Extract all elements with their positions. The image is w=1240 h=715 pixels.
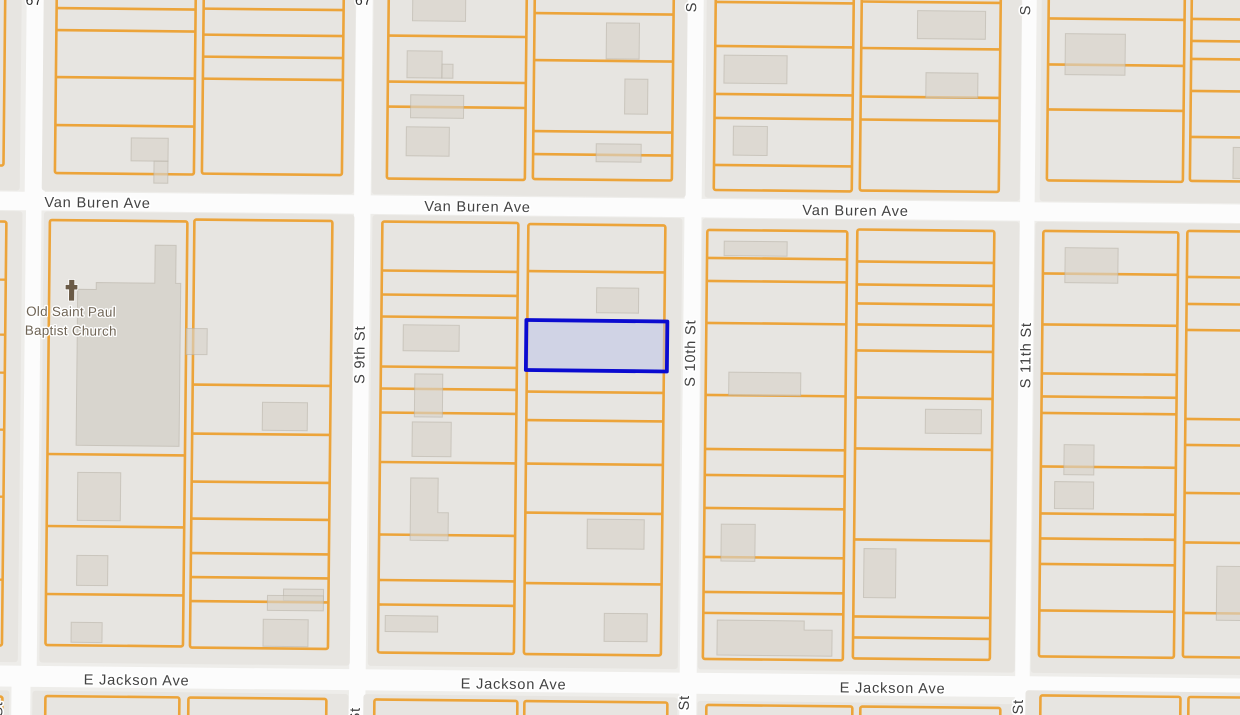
svg-text:S 11th St: S 11th St xyxy=(1010,699,1027,715)
svg-text:S 8th St: S 8th St xyxy=(0,701,6,715)
svg-text:S 11th St: S 11th St xyxy=(1018,0,1035,15)
svg-text:Van Buren Ave: Van Buren Ave xyxy=(802,203,909,220)
svg-text:S 10th St: S 10th St xyxy=(683,320,700,387)
svg-text:67: 67 xyxy=(355,0,372,8)
svg-text:Van Buren Ave: Van Buren Ave xyxy=(44,195,151,212)
svg-text:E Jackson Ave: E Jackson Ave xyxy=(840,680,946,697)
svg-text:Old Saint Paul: Old Saint Paul xyxy=(26,304,116,320)
svg-text:Baptist Church: Baptist Church xyxy=(25,323,117,339)
svg-text:S 10th St: S 10th St xyxy=(676,695,693,715)
svg-text:Van Buren Ave: Van Buren Ave xyxy=(424,199,531,216)
svg-text:67: 67 xyxy=(26,0,43,8)
svg-text:E Jackson Ave: E Jackson Ave xyxy=(461,676,567,693)
svg-text:S 10th St: S 10th St xyxy=(684,0,701,12)
svg-text:S 9th St: S 9th St xyxy=(352,326,369,384)
svg-text:S 9th St: S 9th St xyxy=(347,707,364,715)
svg-text:S 11th St: S 11th St xyxy=(1018,322,1035,388)
svg-text:E Jackson Ave: E Jackson Ave xyxy=(84,672,190,689)
